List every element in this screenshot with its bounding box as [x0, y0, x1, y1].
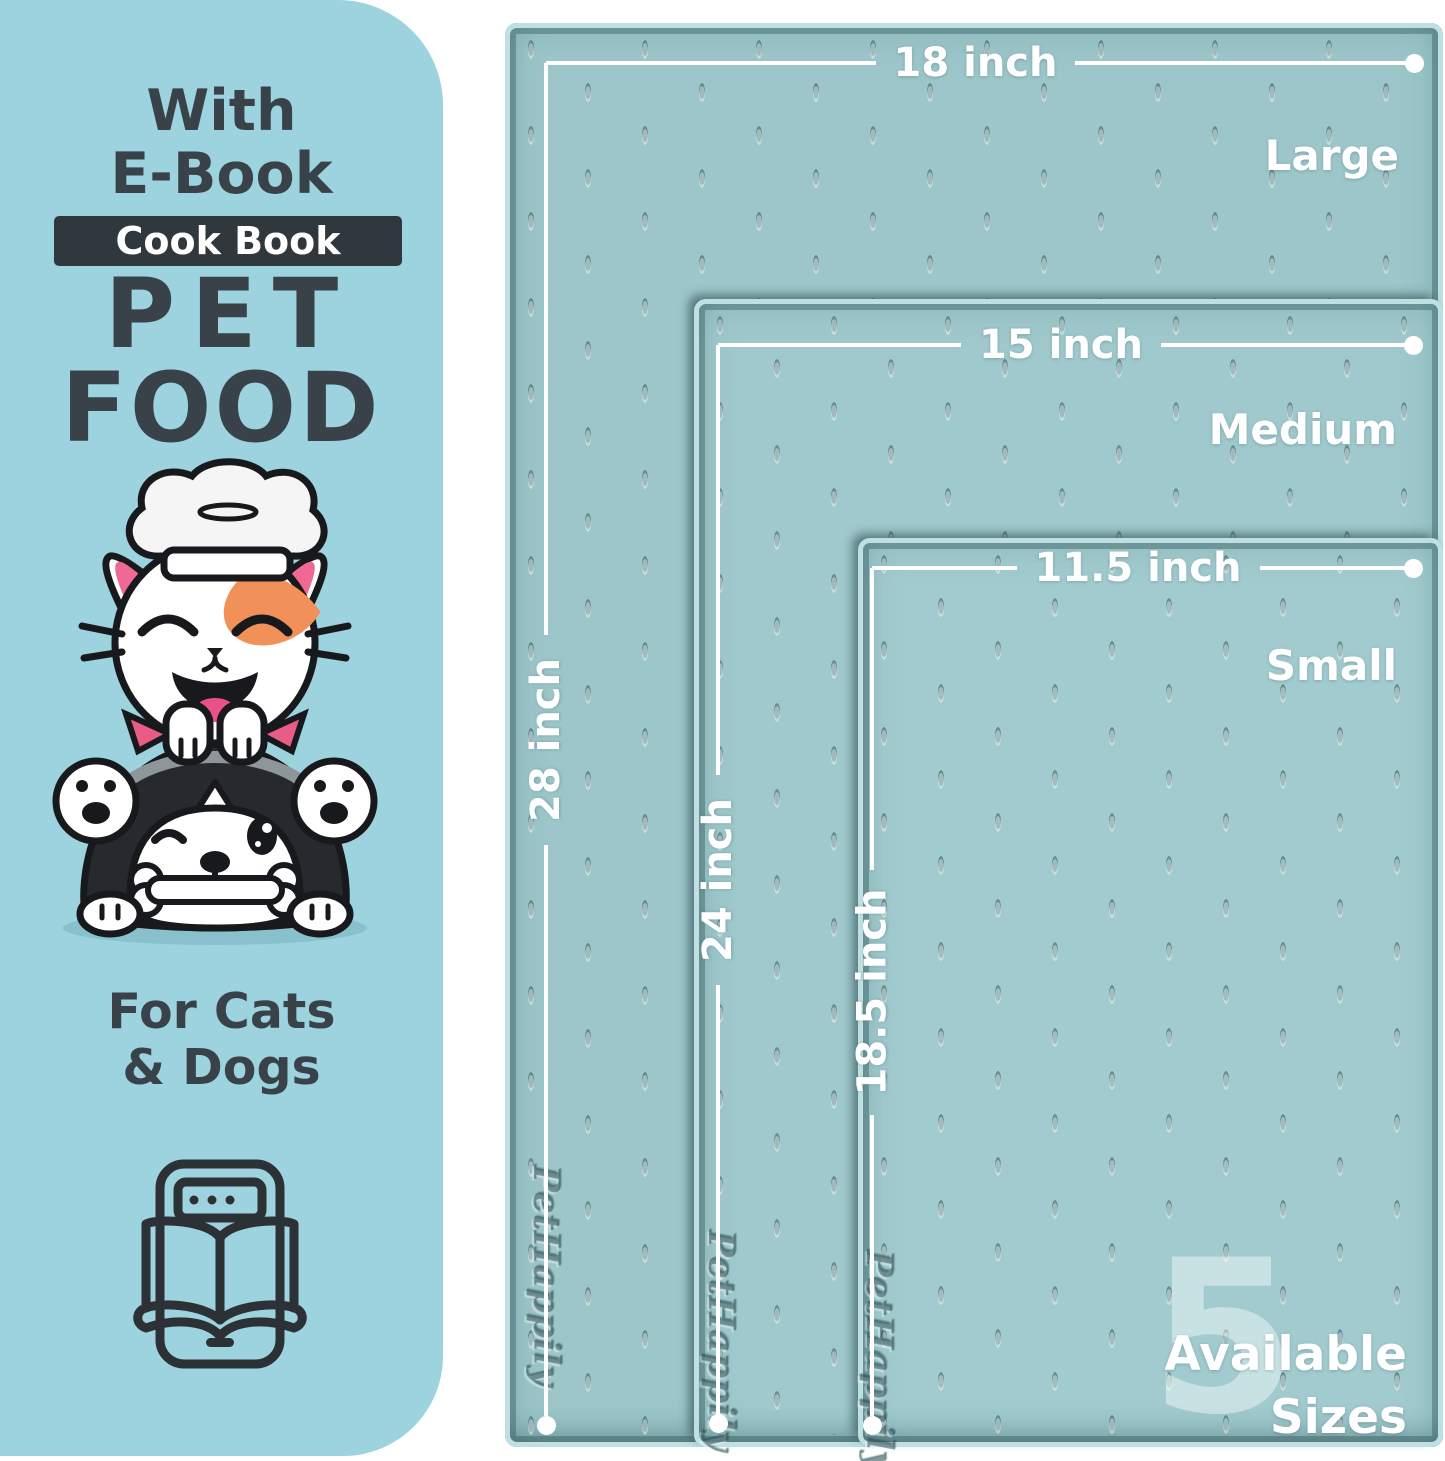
left-panel: With E-Book Cook Book PET FOOD [0, 0, 443, 1456]
mat-large-height-dimension-line: 28 inch [535, 63, 557, 1435]
mat-medium-width-dimension-line: 15 inch [718, 334, 1423, 356]
dimension-line-segment [870, 568, 874, 870]
dimension-endpoint-dot [709, 1414, 728, 1433]
dimension-line-segment [544, 845, 548, 1417]
subtitle-line1: For Cats [0, 984, 443, 1040]
dimension-line-segment [716, 345, 720, 775]
dimension-line-segment [1075, 61, 1405, 65]
dimension-line-segment [544, 63, 548, 635]
dimension-line-segment [1161, 343, 1404, 347]
subtitle-line2: & Dogs [0, 1040, 443, 1096]
ebook-heading-line1: With [0, 80, 443, 143]
mat-large-height-label: 28 inch [535, 635, 557, 845]
mat-large-size-label: Large [1265, 131, 1399, 180]
dimension-endpoint-dot [1404, 336, 1423, 355]
mat-large-width-label: 18 inch [876, 43, 1076, 83]
cat-and-dog-illustration [30, 456, 400, 956]
ebook-heading: With E-Book [0, 80, 443, 205]
mat-medium-size-label: Medium [1209, 405, 1397, 454]
available-sizes-label: Available Sizes [1164, 1324, 1407, 1450]
cat-chef [82, 462, 348, 762]
mat-medium-height-dimension-line: 24 inch [707, 345, 729, 1433]
cats-dogs-subtitle: For Cats & Dogs [0, 984, 443, 1096]
mat-large-width-dimension-line: 18 inch [546, 52, 1424, 74]
chef-hat [129, 462, 324, 556]
cookbook-badge-label: Cook Book [115, 219, 340, 263]
dimension-line-segment [1260, 566, 1405, 570]
available-sizes-line1: Available [1164, 1324, 1407, 1387]
mat-small-width-label: 11.5 inch [1017, 548, 1260, 588]
dimension-line-segment [716, 985, 720, 1415]
dimension-line-segment [870, 1115, 874, 1417]
dimension-endpoint-dot [1405, 54, 1424, 73]
title-food: FOOD [0, 360, 443, 456]
mat-medium-width-label: 15 inch [961, 325, 1161, 365]
mat-small-size-label: Small [1266, 641, 1397, 690]
mat-medium-height-label: 24 inch [707, 775, 729, 985]
dimension-line-segment [546, 61, 876, 65]
dimension-endpoint-dot [537, 1416, 556, 1435]
mat-small: 11.5 inch 18.5 inch Small PetHappily 5 A… [858, 538, 1443, 1447]
mat-small-height-dimension-line: 18.5 inch [861, 568, 883, 1435]
dimension-endpoint-dot [1404, 559, 1423, 578]
mat-small-height-label: 18.5 inch [861, 870, 883, 1115]
dimension-line-segment [872, 566, 1017, 570]
product-infographic: With E-Book Cook Book PET FOOD [0, 0, 1445, 1461]
dimension-endpoint-dot [863, 1416, 882, 1435]
mat-small-width-dimension-line: 11.5 inch [872, 557, 1423, 579]
dimension-line-segment [718, 343, 961, 347]
available-sizes-line2: Sizes [1164, 1387, 1407, 1450]
ebook-heading-line2: E-Book [0, 143, 443, 206]
ebook-tablet-icon [130, 1158, 310, 1373]
title-pet: PET [0, 266, 443, 364]
